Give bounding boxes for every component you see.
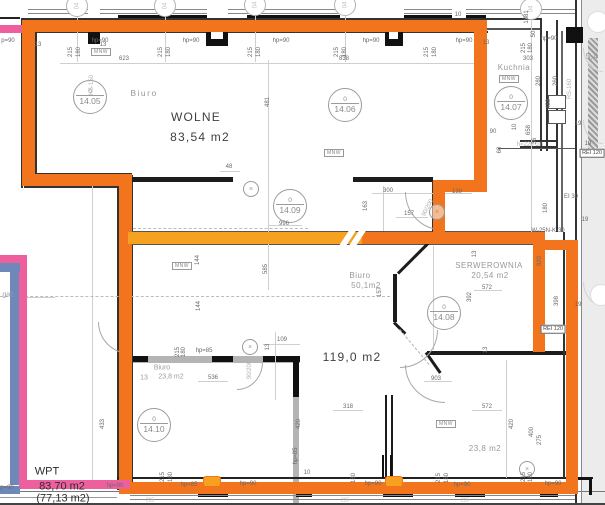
wall-segment [589, 477, 592, 495]
highlight-orange-segment [22, 174, 132, 186]
plan-label: hp=85 [293, 448, 299, 465]
plan-label: 19 [575, 302, 582, 308]
plan-label: 180 [76, 47, 82, 57]
room-tag-number: 14.10 [140, 423, 167, 434]
mnw-tag: MNW [324, 149, 344, 157]
guide-line-v [506, 360, 507, 478]
plan-label: 400 [529, 427, 535, 437]
plan-label: 215 [68, 47, 74, 57]
guide-line-v [275, 332, 276, 400]
plan-label: hp=90 [545, 481, 562, 487]
plan-label: SERWEROWNIA [455, 262, 523, 270]
plan-label: 50 [531, 31, 537, 38]
plan-label: (77,13 m2) [36, 494, 89, 505]
plan-label: 48 [226, 164, 233, 170]
plan-label: 180 [444, 473, 450, 483]
plan-label: 585 [263, 264, 269, 274]
wall-segment [353, 177, 433, 182]
plan-label: 1581 [524, 10, 530, 23]
room-tag-number: 14.09 [276, 204, 303, 215]
guide-line-v [92, 186, 93, 481]
plan-label: 303 [523, 56, 533, 62]
plan-label: 23,8 m2 [469, 445, 501, 453]
floor-plan: 0404040404014.05014.06014.07014.08014.09… [0, 0, 605, 505]
plan-label: 215 [461, 499, 469, 504]
plan-label: hp=90 [183, 38, 200, 44]
highlight-orange-segment [22, 20, 35, 186]
plan-label: 820 [537, 256, 543, 266]
plan-label: hp=85 [181, 482, 198, 488]
plan-label: 420 [509, 419, 515, 429]
wall-segment [382, 455, 384, 478]
wall-segment [404, 13, 452, 14]
door-tag-circle: × [243, 181, 259, 197]
plan-label: 180 [528, 472, 534, 482]
plan-label: 215 [146, 499, 154, 504]
plan-label: hp=85 [196, 348, 213, 354]
plan-label: Kuchnia [498, 64, 530, 72]
wall-segment [130, 495, 575, 496]
kitchen-unit [548, 110, 566, 124]
plan-label: hp=90 [107, 483, 124, 489]
plan-label: 119,0 m2 [323, 351, 382, 363]
wall-segment [487, 28, 542, 30]
plan-label: 536 [208, 375, 218, 381]
plan-label: 275 [537, 435, 543, 445]
plan-label: 180 [432, 47, 438, 57]
wall-segment [556, 20, 558, 232]
plan-label: 215 [521, 472, 527, 482]
plan-label: 90/200 [247, 361, 253, 379]
plan-label: 180 [543, 203, 549, 213]
plan-label: hp=90 [273, 38, 290, 44]
guide-line-h [198, 381, 228, 382]
door-marker-orange [385, 476, 403, 487]
grid-axis-label: 04 [74, 3, 80, 10]
plan-label: 163 [363, 201, 369, 211]
plan-label: hp=90 [240, 481, 257, 487]
plan-label: 13 [140, 375, 148, 382]
plan-label: Biuro [154, 365, 170, 372]
plan-label: 903 [431, 376, 441, 382]
room-tag-number: 14.08 [430, 311, 457, 322]
plan-label: KS-150 [89, 75, 95, 95]
plan-label: Biuro [130, 89, 157, 98]
wall-segment [393, 274, 397, 322]
plan-label: 260 [553, 76, 559, 86]
highlight-orange-segment [22, 20, 487, 32]
plan-label: gaz. [2, 292, 15, 299]
plan-label: 996 [279, 221, 289, 227]
guide-line-h [220, 171, 240, 172]
plan-label: 180 [168, 472, 174, 482]
fire-rating-tag: REI 120 [541, 325, 566, 334]
plan-label: hp=90 [541, 36, 558, 42]
wall-segment [130, 499, 575, 500]
room-tag-floor: 0 [152, 416, 156, 423]
plan-label: 180 [351, 473, 357, 483]
wall-segment [0, 503, 605, 505]
plan-label: 420 [296, 419, 302, 429]
plan-label: hp=90 [456, 38, 473, 44]
wall-segment [385, 395, 387, 478]
mnw-tag: MNW [436, 420, 456, 428]
door-tag-circle: × [242, 339, 258, 355]
plan-label: 13 [265, 344, 271, 351]
plan-label: 13 [472, 251, 478, 258]
grid-axis-label: 04 [342, 2, 348, 9]
plan-label: 10 [512, 124, 518, 131]
plan-label: 157 [404, 211, 414, 217]
room-tag-number: 14.06 [331, 103, 358, 114]
door-swing-arc [405, 365, 445, 403]
plan-label: h=220 cm [517, 142, 544, 148]
wall-segment [545, 13, 575, 14]
plan-label: 215 [158, 47, 164, 57]
room-tag-number: 14.07 [497, 101, 524, 112]
highlight-pink-segment [0, 25, 22, 33]
wall-segment [404, 9, 452, 10]
plan-label: 144 [196, 301, 202, 311]
wall-segment [561, 31, 563, 232]
plan-label: 13 [35, 42, 42, 48]
room-number-tag: 014.09 [273, 189, 307, 223]
plan-label: 658 [526, 125, 532, 135]
wall-segment [546, 31, 548, 151]
plan-label: Biuro [349, 272, 370, 280]
wall-segment [133, 356, 148, 362]
plan-label: 19 [575, 121, 582, 127]
grid-axis-bubble: 04 [66, 0, 88, 17]
plan-label: hp=90 [454, 482, 471, 488]
room-number-tag: 014.08 [427, 296, 461, 330]
plan-label: 215 [160, 472, 166, 482]
plan-label: 5,4 [586, 53, 599, 61]
plan-label: 215 [436, 473, 442, 483]
plan-label: 20,54 m2 [471, 272, 508, 280]
plan-label: 19 [582, 217, 589, 223]
plan-label: 398 [554, 296, 560, 306]
mnw-tag: MNW [499, 75, 519, 83]
wall-segment [563, 232, 565, 478]
fire-rating-tag: REI 120 [580, 149, 605, 158]
wall-segment [566, 27, 583, 43]
grid-axis-bubble: 04 [334, 0, 356, 16]
plan-label: WPT [35, 467, 59, 478]
wall-segment [228, 13, 345, 14]
plan-label: 572 [482, 404, 492, 410]
plan-label: 144 [195, 255, 201, 265]
wall-segment [390, 455, 392, 478]
plan-label: 488 [546, 99, 552, 109]
plan-label: 83,70 m2 [39, 482, 85, 493]
plan-label: 23,8 m2 [158, 374, 183, 381]
plan-label: 10 [304, 470, 311, 476]
plan-label: 280 [536, 76, 542, 86]
room-tag-floor: 0 [288, 197, 292, 204]
plan-label: p=90 [0, 485, 14, 491]
plan-label: 838 [339, 56, 349, 62]
plan-label: 139 [452, 189, 462, 195]
grid-axis-label: 04 [162, 3, 168, 10]
plan-label: hp=90 [365, 481, 382, 487]
plan-label: 109 [277, 337, 287, 343]
wall-segment [545, 9, 575, 10]
wall-segment [0, 17, 20, 19]
room-tag-floor: 0 [509, 94, 513, 101]
plan-label: EI 30 [564, 194, 578, 200]
wall-segment [498, 148, 576, 149]
plan-label: hp=90 [363, 38, 380, 44]
dashed-axis [0, 296, 390, 297]
plan-label: 13 [483, 347, 489, 354]
plan-label: 10 [455, 12, 462, 18]
plan-label: 215 [424, 47, 430, 57]
guide-line-h [60, 63, 480, 64]
mnw-tag: MNW [172, 262, 192, 270]
highlight-orange-segment [119, 174, 132, 490]
plan-label: 180 [256, 47, 262, 57]
plan-label: 300 [383, 188, 393, 194]
grid-axis-bubble [590, 284, 605, 306]
guide-line-h [25, 297, 55, 298]
plan-label: 180 [166, 47, 172, 57]
plan-label: 215 [341, 499, 349, 504]
plan-label: 90 [490, 129, 497, 135]
plan-label: 481 [265, 97, 271, 107]
door-marker-orange [203, 476, 221, 487]
plan-label: 36 [532, 138, 538, 145]
plan-label: 60 [497, 147, 503, 154]
room-number-tag: 014.06 [328, 88, 362, 122]
plan-label: 215 [521, 43, 527, 53]
wall-segment [24, 186, 132, 188]
mnw-tag: MNW [91, 48, 111, 56]
highlight-pink-segment [19, 255, 27, 484]
plan-label: 623 [119, 56, 129, 62]
plan-label: hp=90 [92, 38, 109, 44]
room-number-tag: 014.07 [494, 86, 528, 120]
room-number-tag: 014.10 [137, 408, 171, 442]
guide-line-h [333, 410, 363, 411]
plan-label: 83,54 m2 [170, 131, 230, 143]
highlight-orange-segment-light [128, 232, 362, 244]
room-tag-floor: 0 [442, 304, 446, 311]
plan-label: RS-160 [567, 79, 573, 99]
plan-label: 318 [343, 404, 353, 410]
plan-label: W-25N-K-30 [531, 228, 564, 234]
highlight-orange-segment [362, 232, 545, 244]
plan-label: 180 [181, 347, 187, 357]
guide-line-h [472, 410, 502, 411]
plan-label: 215 [248, 47, 254, 57]
highlight-orange-segment [566, 240, 578, 490]
plan-label: 572 [482, 285, 492, 291]
wall-segment [404, 15, 452, 18]
plan-label: 19 [585, 141, 592, 147]
wall-segment [100, 13, 207, 14]
wall-segment [212, 356, 233, 362]
guide-line-v [268, 60, 269, 290]
dashed-axis [133, 228, 308, 229]
room-tag-floor: 0 [343, 96, 347, 103]
wall-segment [581, 0, 582, 505]
plan-label: WOLNE [171, 111, 221, 123]
plan-label: 13 [483, 40, 490, 46]
grid-axis-bubble [587, 11, 605, 33]
wall-segment [427, 351, 566, 355]
wall-segment [247, 15, 340, 18]
plan-label: p=90 [1, 38, 15, 44]
wall-segment [466, 15, 486, 18]
plan-label: 157 [377, 287, 383, 297]
wall-segment [128, 244, 545, 245]
wall-segment [293, 357, 299, 397]
plan-label: 392 [467, 292, 473, 302]
plan-label: 180 [528, 43, 534, 53]
plan-label: 433 [100, 419, 106, 429]
room-tag-number: 14.05 [76, 95, 103, 106]
grid-axis-label: 04 [252, 2, 258, 9]
